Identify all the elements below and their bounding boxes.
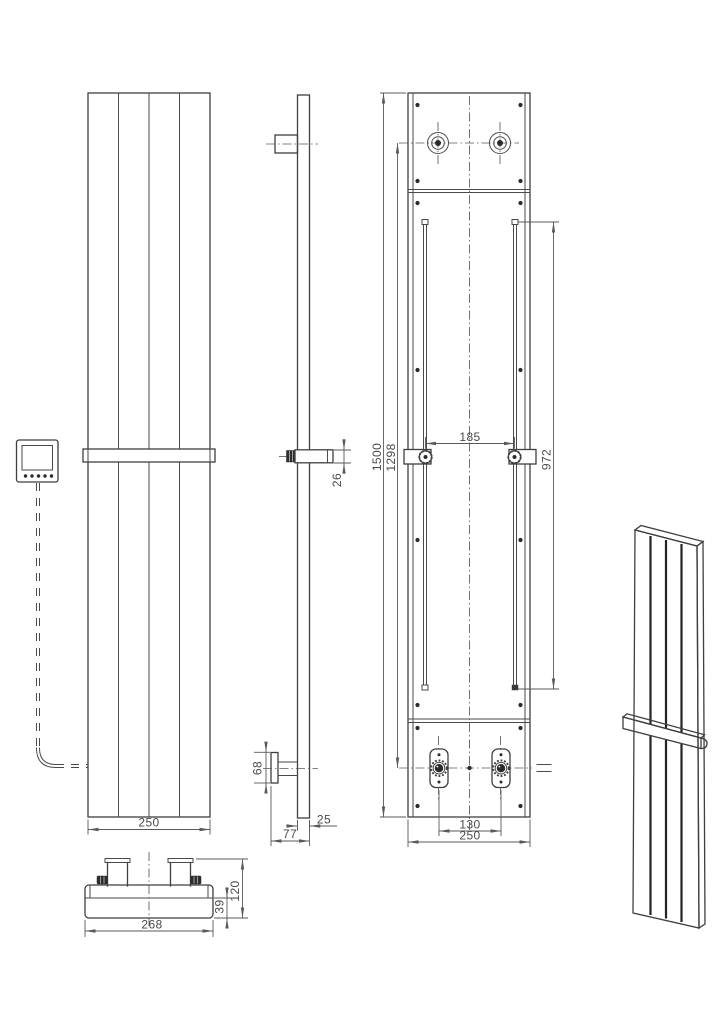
dim-towel-bar-height-label: 26 xyxy=(330,473,344,487)
rear-center-hole xyxy=(467,766,471,770)
thermostat-buttons xyxy=(24,474,53,477)
dim-rail-spacing: 185 xyxy=(426,430,515,449)
dim-total-depth-label: 77 xyxy=(283,827,297,841)
technical-drawing-canvas: 250 xyxy=(0,0,716,1024)
dim-front-width-label: 250 xyxy=(138,816,159,830)
front-view: 250 xyxy=(83,93,215,835)
iso-top-face xyxy=(635,526,703,547)
dim-rear-width-label: 250 xyxy=(459,829,480,843)
dim-header-body-height-label: 39 xyxy=(213,899,227,913)
dim-panel-thickness-label: 25 xyxy=(317,813,331,827)
bottom-view: 120 39 268 xyxy=(85,852,248,937)
drawing-page: 250 xyxy=(0,0,716,1024)
dim-rail-length-label: 972 xyxy=(540,449,554,470)
pipe-stub-left xyxy=(105,859,130,887)
dim-header-width-label: 268 xyxy=(141,918,162,932)
side-top-bracket xyxy=(266,135,318,153)
side-towel-bar xyxy=(279,450,333,463)
dim-total-depth: 77 xyxy=(271,786,310,846)
dim-bracket-plate-height-label: 68 xyxy=(251,761,265,775)
dim-bracket-plate-height: 68 xyxy=(251,746,271,790)
bleed-valve-right xyxy=(191,876,202,884)
equal-break-symbol xyxy=(537,765,551,772)
dim-connection-height-label: 1298 xyxy=(384,443,398,471)
side-view: 26 68 25 7 xyxy=(251,95,352,846)
isometric-view xyxy=(623,526,707,929)
dim-header-width: 268 xyxy=(85,918,213,938)
dim-connection-height: 1298 xyxy=(384,143,398,768)
thermostat-screen xyxy=(22,446,53,471)
dim-overall-height-label: 1500 xyxy=(370,443,384,471)
rear-view: 1500 1298 185 972 130 xyxy=(370,93,559,847)
rear-rail-clamps xyxy=(404,450,536,465)
dim-front-width: 250 xyxy=(88,816,210,835)
power-cable xyxy=(37,483,89,768)
bleed-valve-left xyxy=(97,876,108,884)
pipe-stub-right xyxy=(168,859,193,887)
front-towel-bar xyxy=(83,449,215,462)
rear-mounting-rails xyxy=(422,220,518,691)
dim-rail-spacing-label: 185 xyxy=(459,430,480,444)
thermostat-controller xyxy=(17,440,89,768)
